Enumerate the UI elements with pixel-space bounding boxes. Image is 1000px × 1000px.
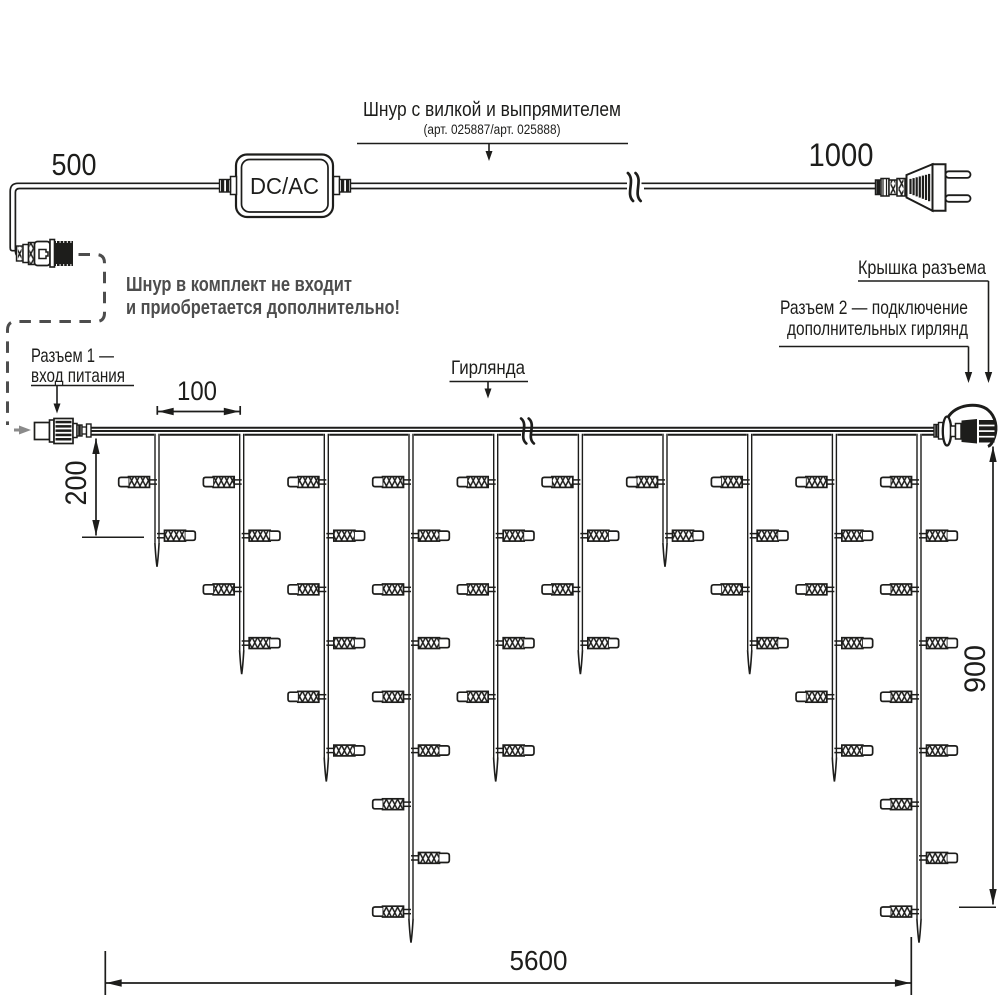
svg-text:Шнур с вилкой и выпрямителем: Шнур с вилкой и выпрямителем [363,98,621,121]
svg-text:Разъем 2 — подключение: Разъем 2 — подключение [780,297,968,319]
svg-text:900: 900 [959,645,992,693]
svg-text:и приобретается дополнительно!: и приобретается дополнительно! [126,297,400,319]
svg-text:100: 100 [177,376,217,406]
svg-text:200: 200 [60,461,93,506]
svg-text:дополнительных гирлянд: дополнительных гирлянд [787,318,968,340]
svg-text:500: 500 [52,147,97,182]
svg-text:Разъем 1 —: Разъем 1 — [31,345,114,367]
svg-text:Шнур в комплект не входит: Шнур в комплект не входит [126,274,352,296]
svg-text:DC/AC: DC/AC [250,173,319,199]
svg-text:1000: 1000 [809,137,874,173]
svg-text:(арт. 025887/арт. 025888): (арт. 025887/арт. 025888) [424,122,561,137]
svg-text:вход питания: вход питания [31,365,125,387]
svg-text:Гирлянда: Гирлянда [451,357,525,379]
svg-text:Крышка разъема: Крышка разъема [858,257,986,279]
svg-text:5600: 5600 [510,945,568,976]
